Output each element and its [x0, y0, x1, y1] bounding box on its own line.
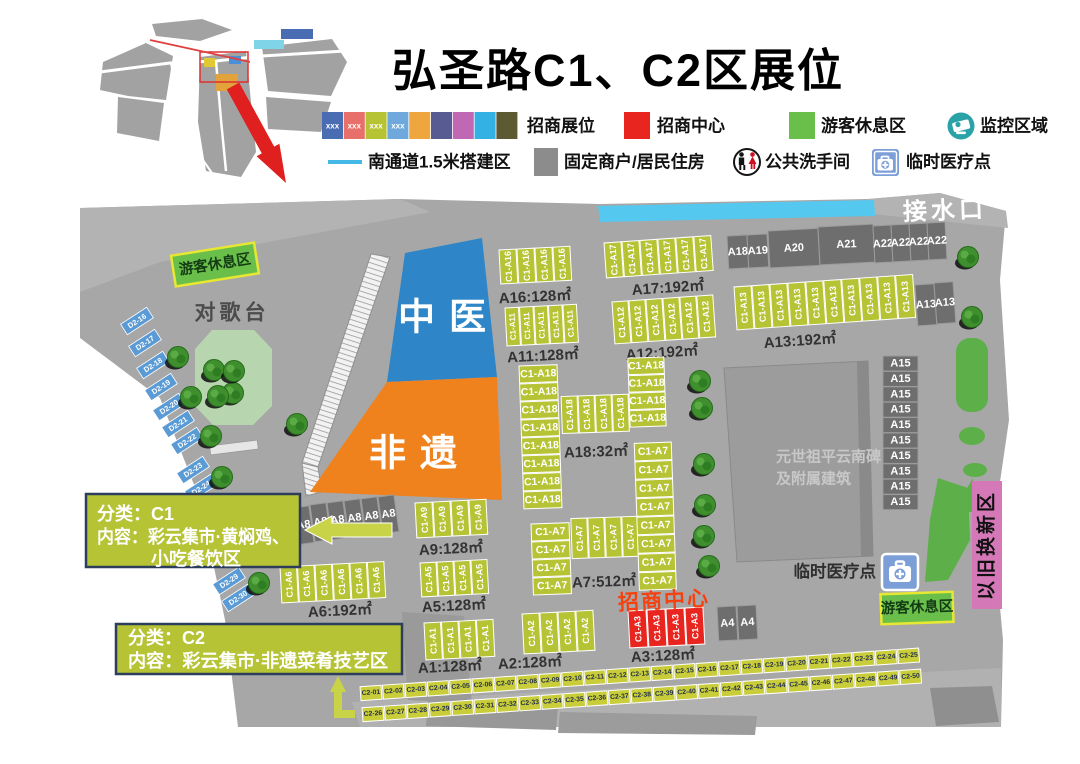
booth-id: C1-A11 — [551, 310, 561, 338]
booth-id: C2-06 — [474, 681, 493, 689]
booth-group-A17: C1-A17C1-A17C1-A17C1-A17C1-A17C1-A17 — [604, 236, 713, 278]
booth-id: C2-27 — [386, 708, 405, 716]
stall-C2-18: C2-18 — [741, 659, 763, 674]
block-A22: A22 — [926, 222, 948, 260]
stall-C2-20: C2-20 — [786, 656, 808, 671]
booth-id: C2-45 — [789, 680, 808, 688]
area-label-A3: A3:128㎡ — [630, 645, 695, 666]
legend-fixed-swatch — [534, 148, 558, 176]
area-label-A18: A18:32㎡ — [564, 441, 629, 461]
area-label-A5: A5:128㎡ — [421, 595, 486, 616]
booth-id: C2-01 — [362, 689, 381, 697]
booth-id: C2-34 — [543, 697, 562, 705]
booth-id: C1-A16 — [503, 251, 515, 282]
booth-id: A4 — [740, 616, 756, 629]
booth-id: C2-26 — [364, 710, 383, 718]
booth-id: A15 — [890, 481, 910, 493]
booth-id: C2-17 — [720, 664, 739, 672]
booth-id: C2-30 — [453, 704, 472, 712]
booth-id: C1-A6 — [371, 567, 382, 594]
note-c1-line1: 分类：C1 — [97, 503, 174, 524]
inset-district — [266, 97, 331, 132]
stall-C2-34: C2-34 — [541, 694, 563, 709]
booth-id: C2-23 — [854, 655, 873, 663]
booth-id: C2-14 — [653, 669, 672, 677]
legend-swatch — [475, 112, 496, 139]
legend-swatches: xxxxxxxxxxxx — [322, 112, 517, 139]
booth-id: A15 — [890, 358, 910, 370]
building-block — [558, 712, 757, 735]
booth-id: C1-A1 — [428, 628, 439, 655]
stall-C2-08: C2-08 — [517, 674, 539, 689]
booth-id: C1-A1 — [480, 625, 491, 652]
booth-id: C1-A18 — [598, 398, 609, 429]
booth-id: C2-16 — [698, 666, 717, 674]
booth-group-A12: C1-A12C1-A12C1-A12C1-A12C1-A12C1-A12 — [612, 295, 716, 344]
stall-C2-24: C2-24 — [875, 650, 897, 665]
booth-id: C1-A7 — [642, 574, 673, 587]
stall-C2-07: C2-07 — [494, 676, 516, 691]
booth-group-A1: C1-A1C1-A1C1-A1C1-A1 — [424, 619, 495, 660]
booth-id: A19 — [747, 244, 768, 257]
legend-swatch — [409, 112, 430, 139]
booth-id: C2-47 — [834, 677, 853, 685]
stall-C2-05: C2-05 — [450, 679, 472, 694]
booth-id: C1-A7 — [640, 500, 671, 513]
trade-in-zone: 以旧换新区 — [972, 481, 1002, 609]
booth-id: C1-A9 — [437, 506, 448, 533]
booth-id: C1-A9 — [419, 507, 430, 534]
stall-C2-22: C2-22 — [830, 653, 852, 668]
booth-id: C2-02 — [384, 687, 403, 695]
inset-area-blue — [281, 29, 313, 39]
booth-id: C2-08 — [518, 678, 537, 686]
booth-id: xxx — [326, 122, 340, 131]
block-A19: A19 — [747, 234, 769, 268]
stall-C2-37: C2-37 — [608, 689, 630, 704]
booth-id: C1-A18 — [521, 385, 558, 398]
booth-id: C2-19 — [765, 661, 784, 669]
stall-C2-46: C2-46 — [810, 675, 832, 690]
booth-id: C2-03 — [406, 686, 425, 694]
booth-id: C2-07 — [496, 680, 515, 688]
booth-id: C1-A7 — [535, 525, 566, 538]
booth-id: C1-A16 — [521, 250, 533, 281]
stall-C2-03: C2-03 — [405, 682, 427, 697]
booth-id: C2-39 — [655, 690, 674, 698]
stall-C2-27: C2-27 — [384, 705, 406, 720]
inset-district — [117, 97, 164, 141]
block-A4: A4 — [737, 605, 758, 640]
booth-id: C1-A3 — [651, 615, 662, 642]
booth-id: C2-38 — [632, 691, 651, 699]
booth-id: C2-24 — [877, 653, 896, 661]
booth-id: C1-A3 — [670, 614, 681, 641]
booth-id: C1-A7 — [638, 463, 669, 476]
booth-id: C1-A6 — [318, 569, 329, 596]
block-A4: A4 — [717, 606, 738, 641]
booth-id: C1-A1 — [445, 627, 456, 654]
booth-id: C1-A18 — [615, 397, 626, 428]
zone-tcm-label: 中医 — [398, 297, 500, 338]
booth-id: C2-43 — [744, 683, 763, 691]
booth-id: A13 — [934, 296, 955, 309]
booth-id: A13 — [915, 298, 936, 311]
booth-id: C2-28 — [408, 707, 427, 715]
booth-id: A15 — [890, 373, 910, 385]
legend-toilet-label: 公共洗手间 — [765, 152, 850, 172]
booth-id: A18 — [727, 245, 748, 258]
area-label-A2: A2:128㎡ — [497, 652, 562, 673]
stall-C2-19: C2-19 — [763, 657, 785, 672]
block-A20: A20 — [768, 228, 820, 268]
booth-id: C1-A2 — [544, 619, 555, 646]
inset-river — [254, 40, 284, 49]
stall-C2-31: C2-31 — [474, 699, 496, 714]
stall-C2-28: C2-28 — [407, 703, 429, 718]
block-A13: A13 — [933, 282, 956, 324]
booth-id: C1-A5 — [423, 566, 434, 593]
booth-id: C2-15 — [675, 667, 694, 675]
water-point-label: 接水口 — [903, 196, 988, 226]
booth-id: C2-46 — [812, 679, 831, 687]
stall-C2-38: C2-38 — [631, 688, 653, 703]
booth-id: C2-20 — [787, 659, 806, 667]
stall-C2-02: C2-02 — [382, 684, 404, 699]
stage-label: 对歌台 — [195, 301, 270, 325]
booth-group-A11: C1-A11C1-A11C1-A11C1-A11C1-A11 — [505, 304, 578, 346]
stall-C2-29: C2-29 — [429, 702, 451, 717]
booth-id: C1-A9 — [473, 504, 484, 531]
booth-id: C1-A7 — [537, 579, 568, 592]
booth-id: C1-A18 — [628, 377, 665, 390]
inset-district — [152, 19, 232, 41]
stall-C2-11: C2-11 — [584, 670, 606, 685]
booth-id: C2-44 — [767, 682, 786, 690]
booth-id: C1-A5 — [457, 565, 468, 592]
booth-id: A15 — [890, 450, 910, 462]
booth-id: C1-A3 — [632, 616, 643, 643]
booth-id: A21 — [836, 238, 857, 251]
booth-id: C2-09 — [541, 676, 560, 684]
stall-C2-39: C2-39 — [653, 686, 675, 701]
booth-id: A4 — [720, 617, 736, 630]
stall-C2-12: C2-12 — [606, 668, 628, 683]
booth-id: C1-A3 — [689, 613, 700, 640]
stall-C2-01: C2-01 — [360, 685, 382, 700]
stall-C2-48: C2-48 — [855, 672, 877, 687]
booth-id: C2-31 — [476, 702, 495, 710]
medical-point-label: 临时医疗点 — [794, 561, 877, 581]
booth-id: C1-A9 — [455, 505, 466, 532]
legend-monitor-label: 监控区域 — [980, 116, 1048, 136]
stall-C2-49: C2-49 — [877, 671, 899, 686]
booth-id: C1-A18 — [524, 493, 561, 506]
legend-fixed-label: 固定商户/居民住房 — [564, 152, 705, 172]
stall-C2-40: C2-40 — [676, 685, 698, 700]
stall-C2-36: C2-36 — [586, 691, 608, 706]
stall-C2-32: C2-32 — [496, 697, 518, 712]
building-block — [930, 686, 999, 726]
booth-id: C1-A18 — [523, 439, 560, 452]
booth-id: C1-A6 — [301, 570, 312, 597]
booth-id: C2-49 — [879, 674, 898, 682]
booth-id: C1-A18 — [564, 399, 575, 430]
booth-id: C1-A5 — [440, 565, 451, 592]
booth-id: C2-40 — [677, 688, 696, 696]
booth-id: C1-A7 — [639, 482, 670, 495]
medical-point-icon — [882, 554, 918, 590]
legend-south-label: 南通道1.5米搭建区 — [368, 152, 511, 172]
block-A18: A18 — [727, 235, 749, 269]
stall-C2-47: C2-47 — [832, 674, 854, 689]
trade-in-zone-label: 以旧换新区 — [975, 490, 998, 600]
stall-C2-41: C2-41 — [698, 683, 720, 698]
booth-id: C1-A11 — [522, 312, 532, 340]
booth-id: C2-13 — [630, 670, 649, 678]
stall-C2-50: C2-50 — [900, 669, 922, 684]
zone-heritage-label: 非遗 — [369, 433, 471, 474]
booth-id: C1-A18 — [629, 394, 666, 407]
booth-group-A9: C1-A9C1-A9C1-A9C1-A9 — [415, 499, 488, 538]
booth-id: C1-A2 — [526, 620, 537, 647]
booth-id: C2-50 — [901, 673, 920, 681]
booth-group-A5: C1-A5C1-A5C1-A5C1-A5 — [420, 559, 489, 596]
booth-group-A2: C1-A2C1-A2C1-A2C1-A2 — [522, 610, 595, 654]
booth-id: A15 — [890, 388, 910, 400]
booth-id: xxx — [348, 122, 362, 131]
booth-id: C1-A2 — [580, 617, 591, 644]
stall-C2-26: C2-26 — [362, 706, 384, 721]
stall-C2-33: C2-33 — [519, 695, 541, 710]
booth-id: C2-10 — [563, 675, 582, 683]
note-c2-line1: 分类：C2 — [128, 627, 205, 648]
booth-id: C2-18 — [742, 662, 761, 670]
booth-id: A8 — [364, 509, 380, 523]
booth-id: C1-A7 — [591, 525, 602, 551]
stall-C2-43: C2-43 — [743, 680, 765, 695]
merchant-center-label: 招商中心 — [617, 586, 710, 615]
stall-C2-17: C2-17 — [718, 660, 740, 675]
booth-id: C2-33 — [520, 699, 539, 707]
booth-id: A15 — [890, 465, 910, 477]
stall-C2-15: C2-15 — [674, 664, 696, 679]
area-label-A16: A16:128㎡ — [498, 286, 571, 308]
booth-id: C1-A7 — [625, 523, 636, 549]
camera-icon — [948, 113, 975, 140]
greenery — [959, 427, 985, 445]
booth-id: C1-A7 — [638, 445, 669, 458]
rest-area-bottom: 游客休息区 — [880, 592, 954, 625]
booth-id: A8 — [381, 507, 397, 521]
stall-C2-30: C2-30 — [452, 700, 474, 715]
note-c1-line3: 小吃餐饮区 — [151, 548, 241, 569]
stall-C2-45: C2-45 — [788, 677, 810, 692]
monument-building: 元世祖平云南碑 及附属建筑 — [724, 361, 881, 562]
legend-south-line — [328, 160, 362, 164]
stall-C2-23: C2-23 — [853, 651, 875, 666]
legend-swatch — [431, 112, 452, 139]
stall-C2-35: C2-35 — [564, 692, 586, 707]
booth-id: C2-25 — [899, 652, 918, 660]
booth-id: C1-A18 — [628, 359, 665, 372]
booth-id: C1-A18 — [520, 367, 557, 380]
legend-center-swatch — [624, 112, 650, 139]
booth-id: C2-12 — [608, 672, 627, 680]
booth-id: C2-32 — [498, 701, 517, 709]
legend-rest-label: 游客休息区 — [821, 116, 906, 136]
booth-id: C2-05 — [451, 683, 470, 691]
medical-icon — [872, 149, 899, 176]
booth-id: C1-A11 — [565, 309, 575, 337]
booth-id: C1-A11 — [508, 312, 518, 340]
legend-swatch — [496, 112, 517, 139]
booth-id: C2-04 — [429, 684, 448, 692]
booth-id: C1-A6 — [284, 571, 295, 598]
booth-id: C1-A7 — [574, 525, 585, 551]
booth-id: C2-41 — [700, 687, 719, 695]
stall-C2-44: C2-44 — [765, 678, 787, 693]
note-c2-line2: 内容：彩云集市·非遗菜肴技艺区 — [128, 650, 388, 671]
scene: 弘圣路C1、C2区展位 xxxxxxxxxxxx 招商展位 招商中心 游客休息区… — [0, 0, 1080, 764]
greenery — [963, 463, 987, 477]
booth-id: C1-A5 — [474, 564, 485, 591]
booth-id: C1-A7 — [536, 543, 567, 556]
booth-id: A15 — [890, 419, 910, 431]
booth-id: C1-A11 — [536, 311, 546, 339]
booth-id: A15 — [890, 404, 910, 416]
booth-id: C1-A7 — [641, 537, 672, 550]
booth-id: C1-A7 — [608, 524, 619, 550]
booth-id: C1-A16 — [556, 248, 568, 279]
legend: xxxxxxxxxxxx 招商展位 招商中心 游客休息区 监控区域 南通道1.5… — [322, 112, 1048, 176]
stall-C2-04: C2-04 — [427, 681, 449, 696]
stall-C2-21: C2-21 — [808, 654, 830, 669]
booth-id: xxx — [369, 122, 383, 131]
booth-id: C2-35 — [565, 696, 584, 704]
block-A15: A15A15A15A15A15A15A15A15A15A15 — [883, 356, 918, 510]
stall-C2-10: C2-10 — [562, 671, 584, 686]
legend-swatch — [453, 112, 474, 139]
stall-C2-16: C2-16 — [696, 662, 718, 677]
legend-medical-label: 临时医疗点 — [906, 152, 991, 172]
legend-booth-label: 招商展位 — [527, 116, 595, 136]
booth-id: C2-42 — [722, 685, 741, 693]
page: 弘圣路C1、C2区展位 xxxxxxxxxxxx 招商展位 招商中心 游客休息区… — [0, 0, 1080, 764]
block-A21: A21 — [818, 224, 875, 265]
booth-id: A20 — [784, 242, 805, 255]
note-c1-line2: 内容：彩云集市·黄焖鸡、 — [97, 526, 289, 547]
booth-id: C1-A7 — [640, 519, 671, 532]
booth-id: C1-A16 — [539, 249, 551, 280]
booth-id: C2-36 — [588, 694, 607, 702]
stall-C2-25: C2-25 — [898, 648, 920, 663]
booth-id: C2-48 — [856, 676, 875, 684]
greenery — [956, 338, 988, 412]
booth-id: C1-A18 — [522, 421, 559, 434]
monument-label-line1: 元世祖平云南碑 — [776, 448, 881, 466]
booth-id: C1-A7 — [642, 556, 673, 569]
booth-id: C1-A18 — [521, 403, 558, 416]
legend-center-label: 招商中心 — [657, 116, 725, 136]
area-label-A1: A1:128㎡ — [417, 656, 482, 677]
booth-id: C1-A1 — [462, 626, 473, 653]
booth-id: C1-A2 — [562, 618, 573, 645]
area-label-A6: A6:192㎡ — [307, 600, 372, 621]
area-label-A7: A7:512㎡ — [572, 571, 637, 591]
stall-C2-13: C2-13 — [629, 667, 651, 682]
booth-id: C1-A18 — [523, 457, 560, 470]
booth-id: A22 — [927, 234, 948, 247]
stall-C2-14: C2-14 — [651, 665, 673, 680]
inset-area-yellow — [204, 58, 215, 67]
booth-id: C1-A6 — [353, 568, 364, 595]
restroom-icon — [734, 149, 760, 175]
stall-C2-09: C2-09 — [539, 673, 561, 688]
monument-label-line2: 及附属建筑 — [776, 470, 851, 488]
legend-rest-swatch — [789, 112, 815, 139]
stall-C2-06: C2-06 — [472, 678, 494, 693]
booth-id: C1-A18 — [630, 412, 667, 425]
booth-id: C2-22 — [832, 656, 851, 664]
booth-id: A15 — [890, 496, 910, 508]
note-c1: 分类：C1 内容：彩云集市·黄焖鸡、 小吃餐饮区 — [86, 494, 300, 569]
area-label-A9: A9:128㎡ — [418, 538, 483, 559]
booth-id: xxx — [391, 122, 405, 131]
booth-id: C1-A7 — [536, 561, 567, 574]
booth-id: C1-A6 — [336, 569, 347, 596]
stall-C2-42: C2-42 — [720, 681, 742, 696]
booth-id: C1-A18 — [581, 398, 592, 429]
booth-id: A15 — [890, 435, 910, 447]
inset-map — [100, 19, 347, 183]
booth-id: C1-A18 — [524, 475, 561, 488]
booth-id: C2-29 — [431, 705, 450, 713]
note-c2: 分类：C2 内容：彩云集市·非遗菜肴技艺区 — [116, 624, 402, 674]
booth-group-A16: C1-A16C1-A16C1-A16C1-A16 — [499, 246, 572, 284]
booth-id: C2-21 — [810, 658, 829, 666]
booth-id: C2-37 — [610, 693, 629, 701]
area-label-A11: A11:128㎡ — [507, 345, 580, 367]
booth-id: C2-11 — [586, 673, 605, 681]
page-title: 弘圣路C1、C2区展位 — [392, 45, 844, 96]
